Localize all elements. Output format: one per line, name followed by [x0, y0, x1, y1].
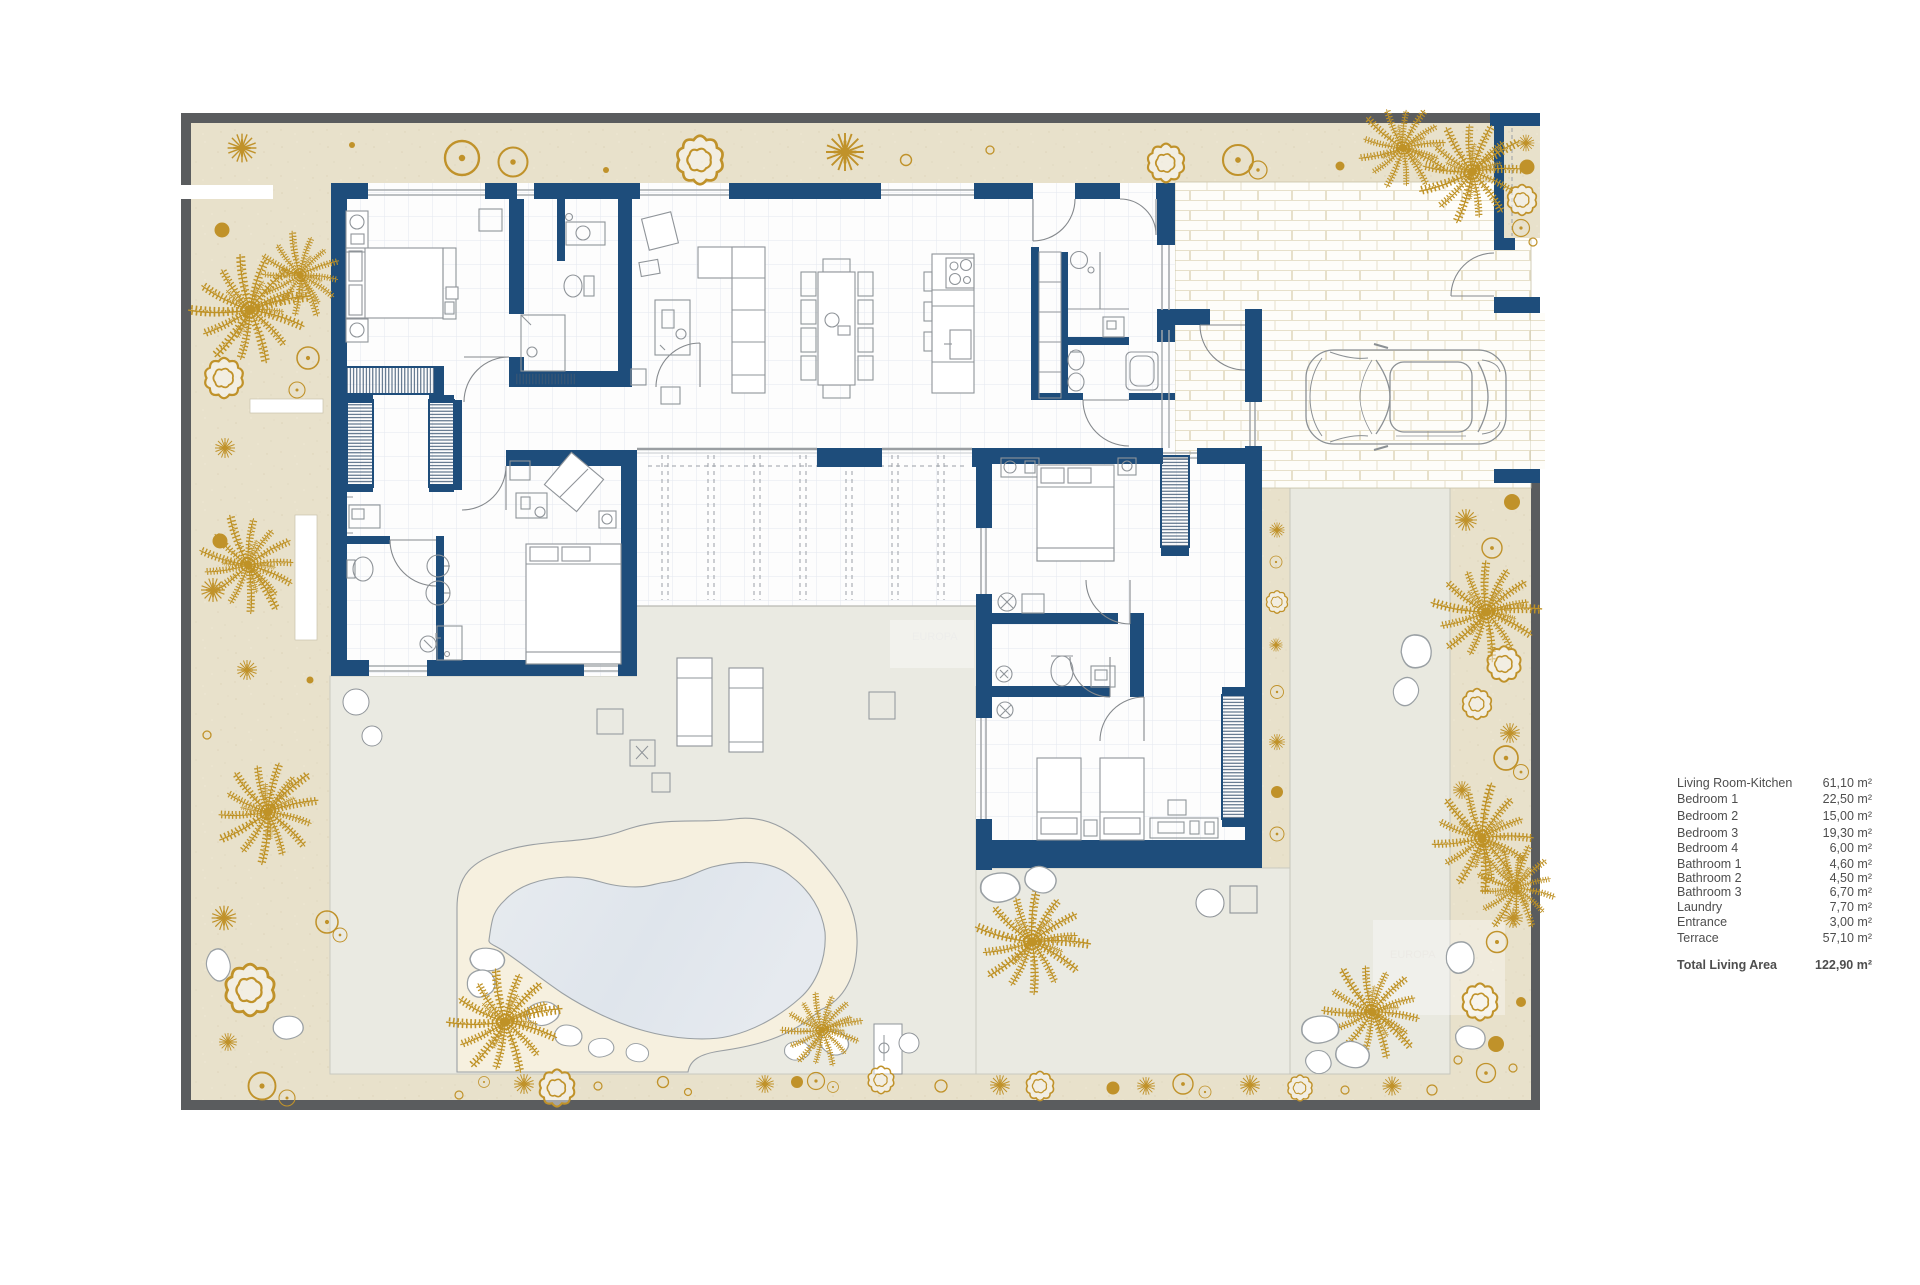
- svg-text:Bedroom 2: Bedroom 2: [1677, 809, 1738, 823]
- svg-text:Bedroom 1: Bedroom 1: [1677, 792, 1738, 806]
- svg-text:Total Living Area: Total Living Area: [1677, 958, 1778, 972]
- svg-text:Living Room-Kitchen: Living Room-Kitchen: [1677, 776, 1792, 790]
- svg-text:15,00 m²: 15,00 m²: [1823, 809, 1872, 823]
- svg-text:Bathroom 1: Bathroom 1: [1677, 857, 1742, 871]
- svg-text:Bedroom 3: Bedroom 3: [1677, 826, 1738, 840]
- svg-text:57,10 m²: 57,10 m²: [1823, 931, 1872, 945]
- svg-text:Laundry: Laundry: [1677, 900, 1723, 914]
- svg-text:EUROPA: EUROPA: [912, 631, 958, 643]
- svg-text:Bathroom 3: Bathroom 3: [1677, 885, 1742, 899]
- svg-text:Entrance: Entrance: [1677, 915, 1727, 929]
- svg-text:22,50 m²: 22,50 m²: [1823, 792, 1872, 806]
- svg-text:61,10 m²: 61,10 m²: [1823, 776, 1872, 790]
- svg-text:Bathroom 2: Bathroom 2: [1677, 871, 1742, 885]
- svg-text:122,90 m²: 122,90 m²: [1815, 958, 1872, 972]
- svg-text:7,70 m²: 7,70 m²: [1830, 900, 1872, 914]
- svg-text:EUROPA: EUROPA: [1390, 949, 1436, 961]
- svg-text:6,00 m²: 6,00 m²: [1830, 841, 1872, 855]
- svg-text:4,60 m²: 4,60 m²: [1830, 857, 1872, 871]
- svg-text:4,50 m²: 4,50 m²: [1830, 871, 1872, 885]
- svg-text:19,30 m²: 19,30 m²: [1823, 826, 1872, 840]
- svg-text:Bedroom 4: Bedroom 4: [1677, 841, 1738, 855]
- svg-text:3,00 m²: 3,00 m²: [1830, 915, 1872, 929]
- svg-text:Terrace: Terrace: [1677, 931, 1719, 945]
- svg-text:6,70 m²: 6,70 m²: [1830, 885, 1872, 899]
